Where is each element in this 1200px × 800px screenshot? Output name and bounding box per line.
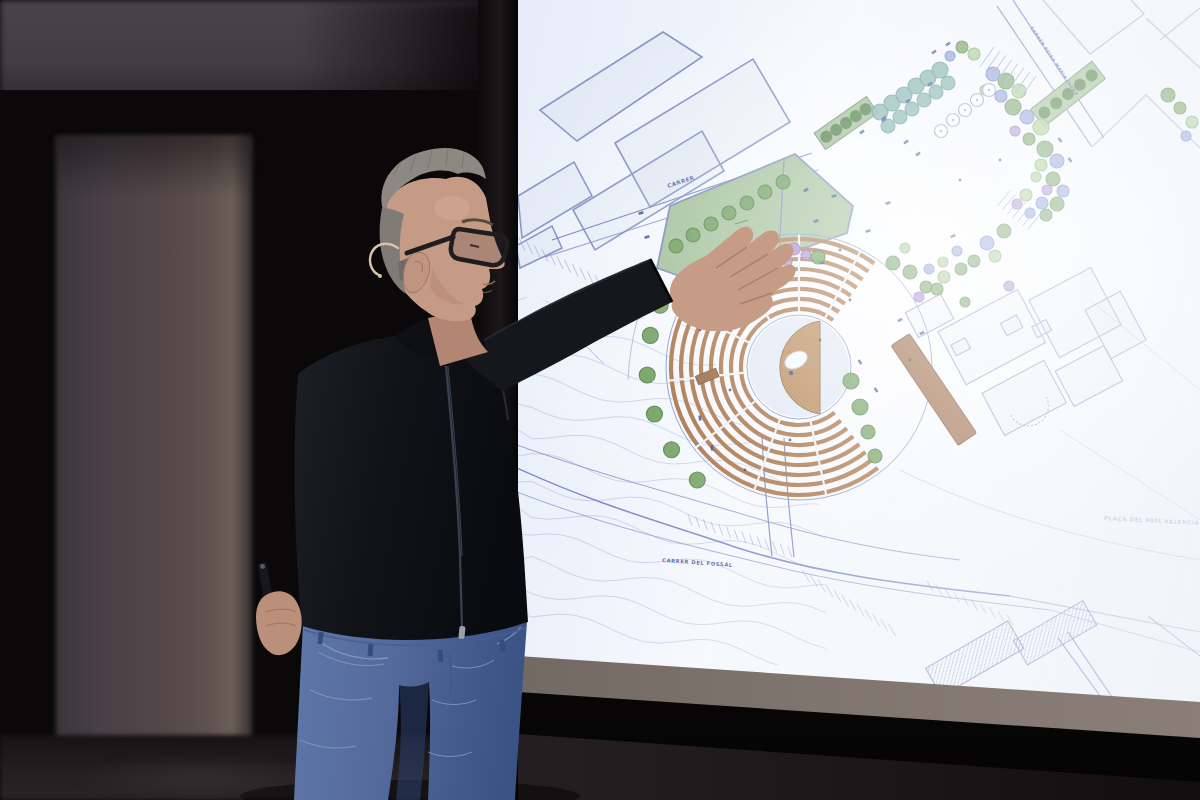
- pointing-hand: [650, 227, 796, 332]
- raised-arm-sleeve: [462, 259, 672, 391]
- presenter: [0, 0, 1200, 800]
- glasses-lens: [451, 229, 507, 265]
- jeans: [294, 622, 527, 800]
- jacket: [295, 259, 672, 640]
- head: [370, 148, 507, 366]
- scene: CARRER CARRER REINA MARIA JAUME CARRER D…: [0, 0, 1200, 800]
- left-hand-and-clicker: [256, 562, 302, 655]
